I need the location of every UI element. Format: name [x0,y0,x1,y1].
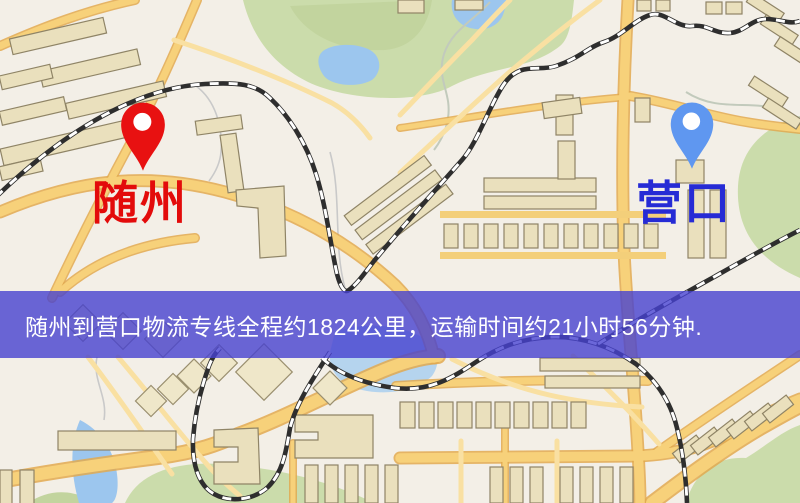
destination-pin-icon [666,100,718,170]
map-view: 随州 营口 随州到营口物流专线全程约1824公里，运输时间约21小时56分钟. [0,0,800,503]
route-banner-text: 随州到营口物流专线全程约1824公里，运输时间约21小时56分钟. [0,308,702,342]
origin-label: 随州 [70,180,210,226]
route-banner: 随州到营口物流专线全程约1824公里，运输时间约21小时56分钟. [0,291,800,358]
map-canvas [0,0,800,503]
origin-pin-icon [117,100,169,172]
destination-label: 营口 [614,180,754,226]
